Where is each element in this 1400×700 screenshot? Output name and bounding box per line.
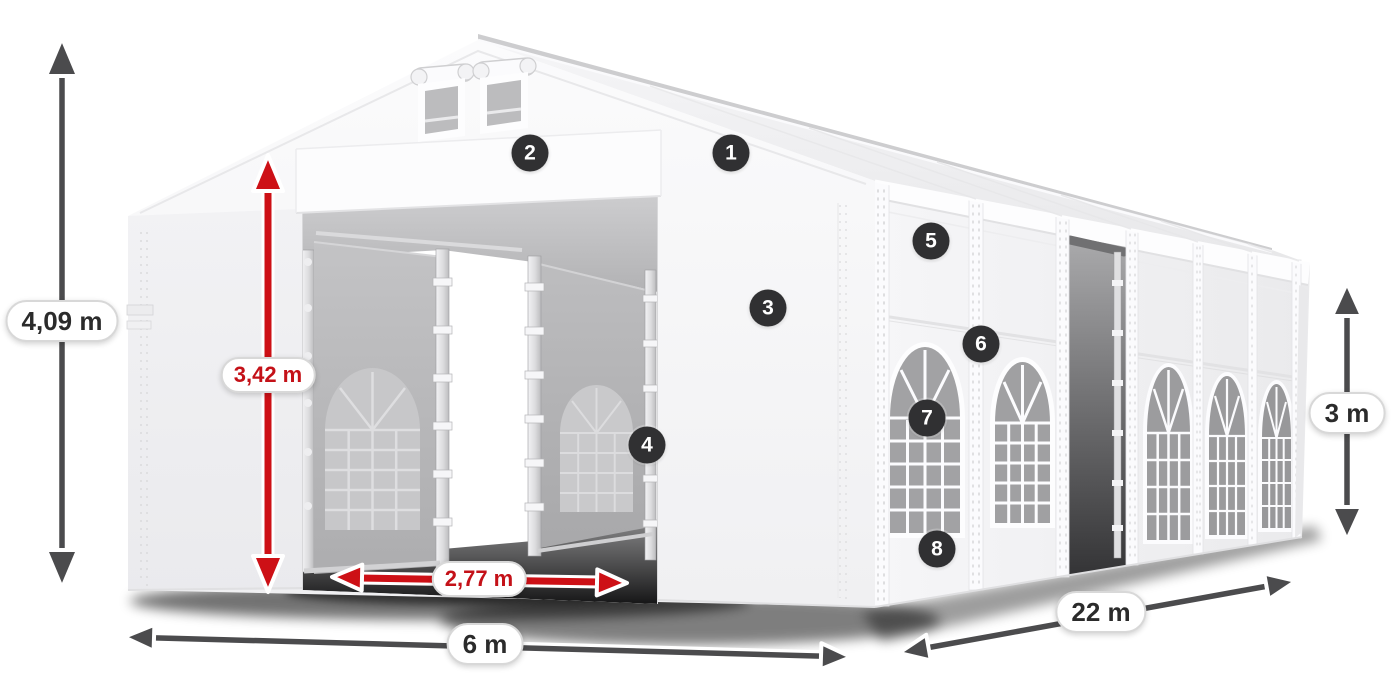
feature-hotspot-4[interactable]: 4	[629, 427, 666, 464]
feature-hotspot-8[interactable]: 8	[919, 531, 956, 568]
side-window	[1205, 372, 1249, 539]
entrance-frame-pole	[645, 270, 656, 560]
inner-frame-pole	[1114, 252, 1121, 558]
roof-vent-right	[473, 57, 536, 134]
entrance-left-door-panel	[302, 242, 452, 574]
front-left-wall	[128, 209, 302, 590]
side-window	[1143, 363, 1194, 544]
feature-hotspot-6[interactable]: 6	[963, 326, 1000, 363]
front-entrance-opening	[300, 190, 660, 606]
wall-buckle	[127, 321, 151, 329]
entrance-right-door-panel	[525, 256, 658, 560]
wall-buckle	[127, 305, 153, 315]
feature-hotspot-7[interactable]: 7	[909, 400, 946, 437]
dimension-label-front-width: 6 m	[447, 623, 524, 665]
dimension-label-entrance-width: 2,77 m	[432, 561, 527, 597]
side-window	[885, 342, 965, 538]
feature-hotspot-2[interactable]: 2	[512, 135, 549, 172]
dimension-label-total-height: 4,09 m	[6, 300, 119, 342]
roof-vent-left	[411, 63, 474, 142]
feature-hotspot-5[interactable]: 5	[913, 223, 950, 260]
dimension-label-side-height: 3 m	[1309, 392, 1386, 434]
side-window	[990, 357, 1055, 528]
feature-hotspot-3[interactable]: 3	[750, 290, 787, 327]
dimension-label-entrance-height: 3,42 m	[221, 357, 316, 393]
dimension-label-side-length: 22 m	[1055, 591, 1146, 633]
feature-hotspot-1[interactable]: 1	[713, 135, 750, 172]
open-side-section	[1068, 236, 1126, 575]
side-window	[1258, 380, 1295, 532]
tent-illustration	[0, 0, 1400, 700]
tent-diagram: 1 2 3 4 5 6 7 8 4,09 m 3,42 m 2,77 m 6 m…	[0, 0, 1400, 700]
